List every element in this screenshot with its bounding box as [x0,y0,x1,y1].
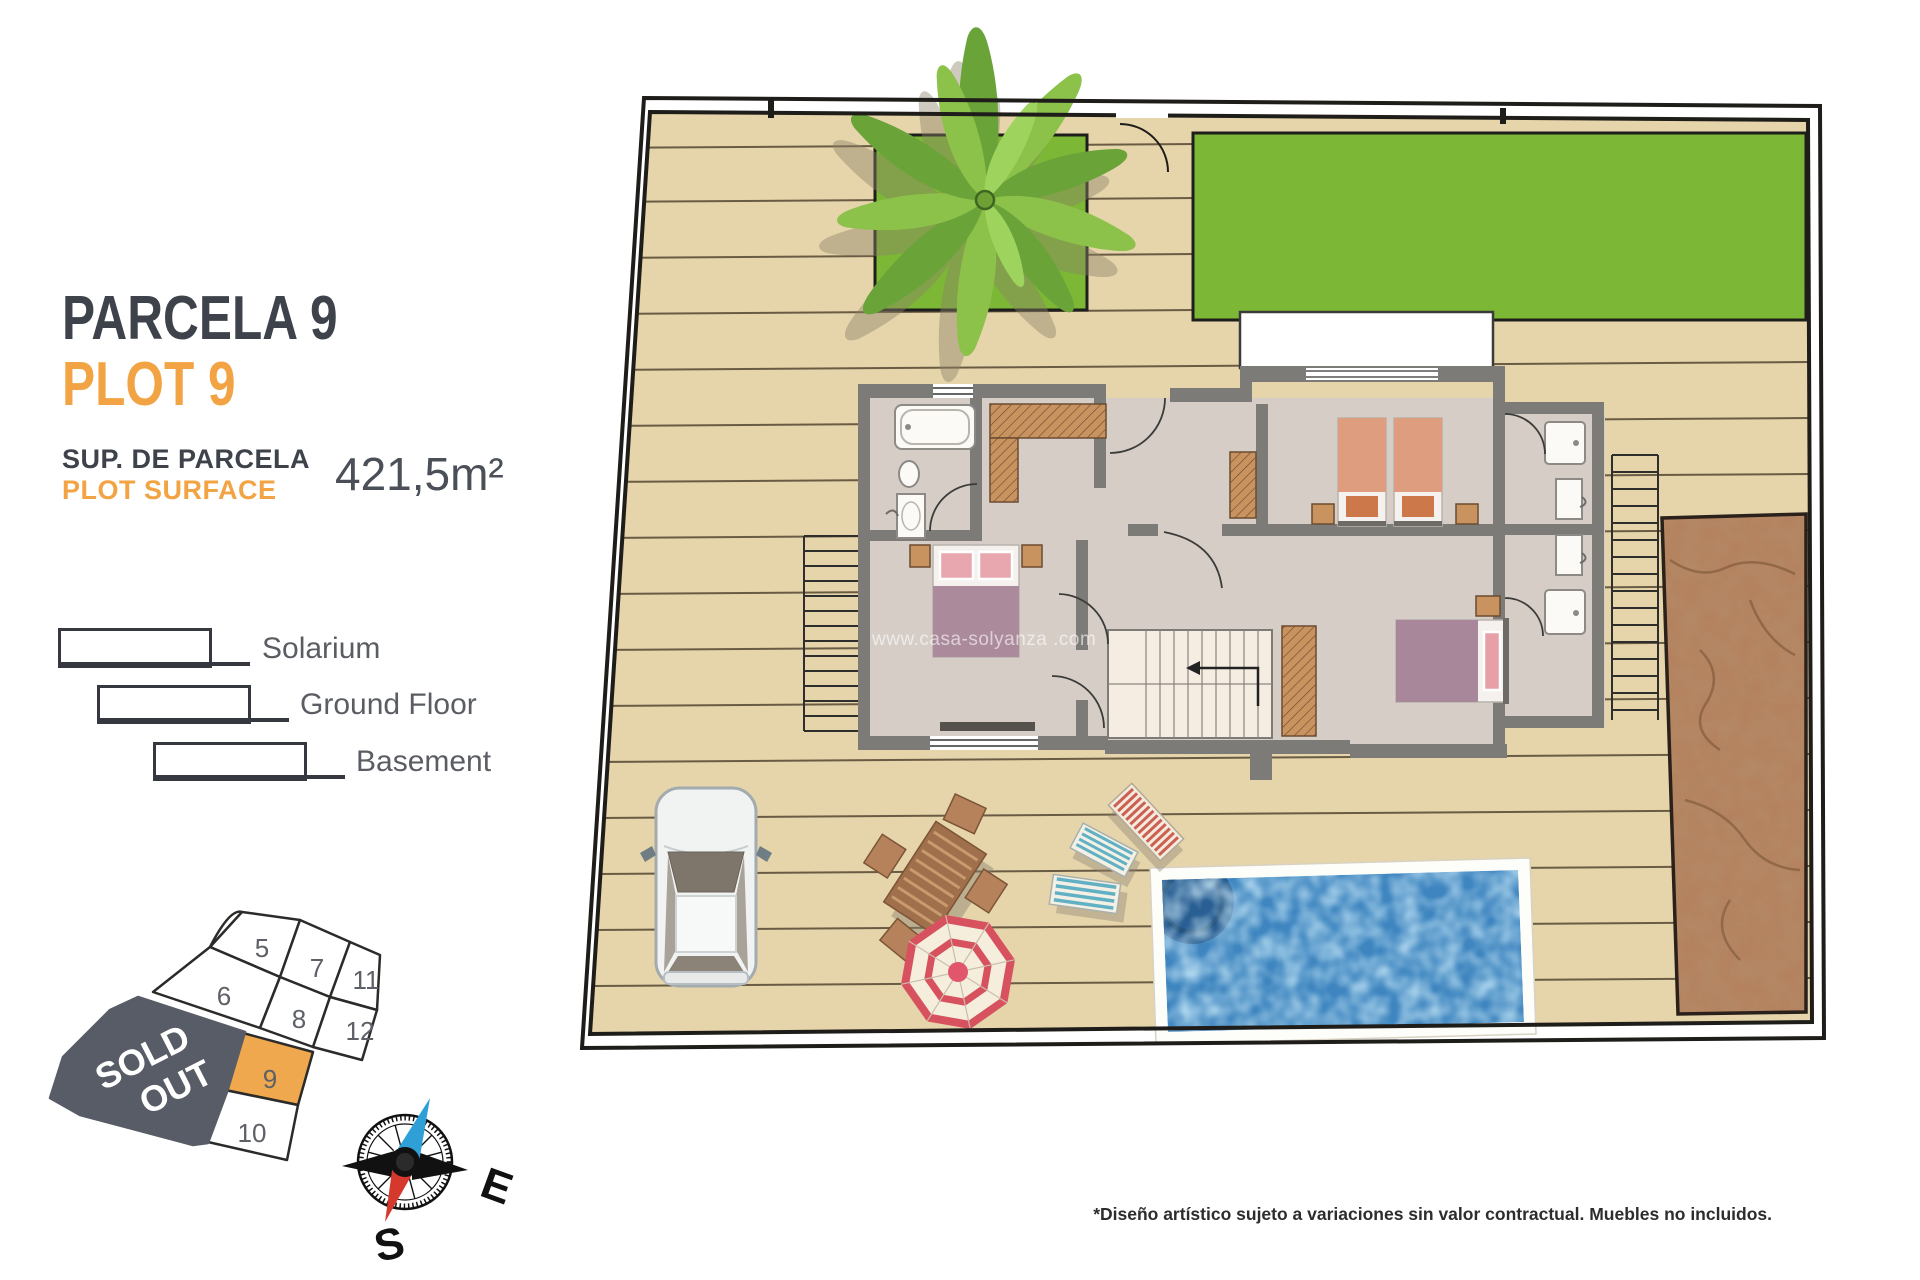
dirt-area [1650,505,1820,1025]
disclaimer-text: *Diseño artístico sujeto a variaciones s… [1093,1204,1772,1225]
minimap-label-5: 5 [255,933,269,963]
bathtub [895,405,975,449]
compass-west-point [342,1150,398,1178]
legend-tail-solarium [58,662,250,666]
legend-tail-ground-floor [97,718,289,722]
legend-label-ground-floor: Ground Floor [300,688,477,722]
page-title-en: PLOT 9 [62,349,236,420]
interior-stairs [1108,630,1272,738]
minimap-label-12: 12 [346,1016,375,1046]
minimap-label-8: 8 [292,1004,306,1034]
minimap-label-11: 11 [353,965,380,995]
swimming-pool [1150,858,1540,1048]
minimap-label-6: 6 [217,981,231,1011]
toilet [899,461,919,487]
plot-location-map [50,912,380,1160]
legend-tail-basement [153,775,345,779]
car [640,788,772,986]
page-title: PARCELA 9 [62,283,338,354]
compass-east-label: E [475,1158,519,1214]
compass-south-label: S [370,1218,409,1272]
floor-plan-page: 5 7 11 6 8 12 9 10 SOLD OUT [0,0,1920,1280]
minimap-label-10: 10 [238,1118,267,1148]
surface-label: SUP. DE PARCELA [62,444,310,475]
lawn-right [1193,133,1806,320]
surface-value: 421,5m² [335,447,504,501]
gate-opening [1116,106,1168,118]
compass-rose: E S [342,1098,519,1272]
minimap-label-7: 7 [310,953,324,983]
minimap-label-9: 9 [263,1064,277,1094]
surface-label-en: PLOT SURFACE [62,475,277,506]
watermark: www.casa-solyanza .com [872,629,1096,651]
legend-label-basement: Basement [356,745,491,779]
legend-label-solarium: Solarium [262,632,380,666]
